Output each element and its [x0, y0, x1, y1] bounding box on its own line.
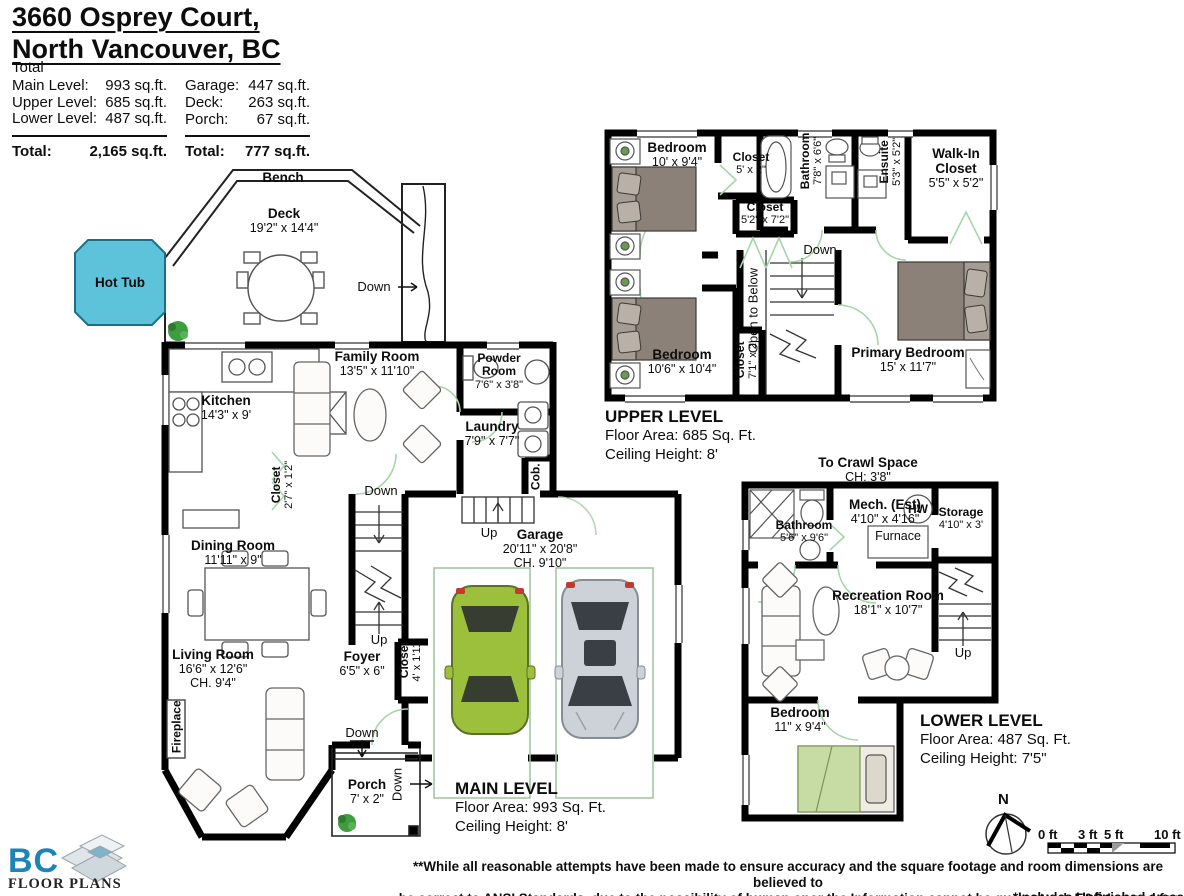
area-table-left: Total Main Level:993 sq.ft. Upper Level:… — [12, 60, 167, 161]
disclaimer-line-3: *Includes Unfinished areas — [392, 890, 1184, 896]
upper-stairs — [766, 250, 834, 395]
room-dims: 7' x 2" — [327, 792, 407, 806]
area-label: Total: — [12, 144, 52, 161]
area-row: Main Level:993 sq.ft. — [12, 78, 167, 95]
area-label: Garage: — [185, 78, 239, 95]
room-dims: 14'3" x 9' — [166, 408, 286, 422]
deck-table-and-chairs — [237, 252, 324, 324]
room-dims: 7'9" x 7'7" — [442, 434, 542, 448]
room-name: Ensuite — [878, 123, 891, 201]
room-dims: 19'2" x 14'4" — [229, 221, 339, 235]
kitchen-label: Kitchen14'3" x 9' — [166, 393, 286, 422]
deck-plant — [168, 321, 188, 341]
room-name: Bedroom — [622, 347, 742, 362]
room-name: Dining Room — [173, 538, 293, 553]
room-dims: 11" x 9'4" — [752, 720, 848, 734]
bc-floor-plans-logo-graphic — [62, 835, 126, 882]
rec-room-furniture — [762, 562, 935, 703]
fireplace-label: Fireplace — [170, 692, 183, 762]
scale-bar — [1048, 843, 1175, 853]
area-value: 777 sq.ft. — [245, 144, 310, 161]
room-name: Deck — [229, 206, 339, 221]
deck-down-label: Down — [352, 279, 396, 294]
room-name: Recreation Room — [818, 588, 958, 603]
room-dims: 5'2" x 7'2" — [733, 214, 797, 226]
room-dims: 4'10" x 3' — [921, 519, 1001, 531]
porch-plant — [338, 814, 356, 832]
compass-north-label: N — [998, 791, 1009, 808]
closet-foyer-label: Closet4' x 1'11" — [398, 628, 424, 692]
area-total-row: Total:2,165 sq.ft. — [12, 135, 167, 161]
area-value: 67 sq.ft. — [257, 112, 310, 129]
room-name: Storage — [921, 506, 1001, 519]
room-dims: 5'6" x 9'6" — [756, 532, 852, 544]
room-dims: 7'8" x 6'6" — [813, 120, 825, 202]
lower-up-label: Up — [948, 645, 978, 660]
room-dims: 15' x 11'7" — [838, 360, 978, 374]
scale-10ft-label: 10 ft — [1154, 827, 1181, 842]
deck-down-arrow — [398, 283, 417, 291]
area-row: Upper Level:685 sq.ft. — [12, 95, 167, 112]
deck-label: Deck19'2" x 14'4" — [229, 206, 339, 235]
closet-hall-label: Closet2'7" x 1'2" — [270, 450, 296, 520]
upper-level-heading: UPPER LEVEL Floor Area: 685 Sq. Ft. Ceil… — [605, 406, 756, 465]
room-dims: 6'5" x 6" — [322, 664, 402, 678]
room-name: Foyer — [322, 649, 402, 664]
porch-label: Porch7' x 2" — [327, 777, 407, 806]
area-value: 487 sq.ft. — [105, 111, 167, 128]
room-dims: 13'5" x 11'10" — [312, 364, 442, 378]
area-row: Porch:67 sq.ft. — [185, 112, 310, 129]
area-total-row: Total:777 sq.ft. — [185, 135, 310, 161]
area-table-header: Total — [12, 60, 167, 77]
area-label: Deck: — [185, 95, 223, 112]
walk-in-closet-label: Walk-InCloset5'5" x 5'2" — [916, 146, 996, 190]
upper-closet2-label: Closet5'2" x 7'2" — [733, 201, 797, 227]
garage-stairs — [462, 497, 534, 523]
room-dims: 10'6" x 10'4" — [622, 362, 742, 376]
area-value: 993 sq.ft. — [105, 78, 167, 95]
lower-level-heading: LOWER LEVEL Floor Area: 487 Sq. Ft. Ceil… — [920, 710, 1071, 769]
compass — [986, 814, 1030, 854]
main-stairs-down-label: Down — [359, 483, 403, 498]
room-ch: CH. 9'4" — [150, 676, 276, 690]
room-name: Porch — [327, 777, 407, 792]
garage-up-label: Up — [477, 525, 501, 540]
furnace-label: Furnace — [870, 529, 926, 543]
room-name: Family Room — [312, 349, 442, 364]
room-name: Closet — [733, 201, 797, 214]
room-name: Closet — [716, 151, 786, 164]
area-row: Deck:263 sq.ft. — [185, 95, 310, 112]
main-stairs — [355, 505, 403, 634]
scale-3ft-label: 3 ft — [1078, 827, 1098, 842]
area-row: Lower Level:487 sq.ft. — [12, 111, 167, 128]
upper-bed-1 — [612, 167, 696, 231]
living-room-furniture — [177, 688, 304, 828]
family-room-label: Family Room13'5" x 11'10" — [312, 349, 442, 378]
room-name: Bedroom — [752, 705, 848, 720]
dining-room-label: Dining Room11'11" x 9" — [173, 538, 293, 567]
logo-floor-plans-text: FLOOR PLANS — [8, 876, 122, 893]
room-dims: 18'1" x 10'7" — [818, 603, 958, 617]
powder-room-label: PowderRoom7'6" x 3'8" — [460, 352, 538, 391]
upper-bathroom-label: Bathroom7'8" x 6'6" — [799, 120, 825, 202]
area-row: Garage:447 sq.ft. — [185, 78, 310, 95]
lower-bed — [798, 746, 894, 812]
porch-down-label: Down — [340, 725, 384, 740]
ensuite-label: Ensuite5'3" x 5'2" — [878, 123, 904, 201]
scale-0ft-label: 0 ft — [1038, 827, 1058, 842]
upper-down-label: Down — [798, 242, 842, 257]
room-ch: CH. 9'10" — [480, 556, 600, 570]
room-name: Closet — [270, 450, 283, 520]
car-green — [445, 586, 535, 734]
room-name: Primary Bedroom — [838, 345, 978, 360]
room-dims: 20'11" x 20'8" — [480, 542, 600, 556]
room-dims: 7'6" x 3'8" — [460, 379, 538, 391]
scale-5ft-label: 5 ft — [1104, 827, 1124, 842]
living-room-label: Living Room16'6" x 12'6"CH. 9'4" — [150, 647, 276, 690]
upper-bedroom2-label: Bedroom10'6" x 10'4" — [622, 347, 742, 376]
lower-bedroom-label: Bedroom11" x 9'4" — [752, 705, 848, 734]
disclaimer-line-1: **While all reasonable attempts have bee… — [413, 859, 1163, 890]
recreation-room-label: Recreation Room18'1" x 10'7" — [818, 588, 958, 617]
room-dims: 2'7" x 1'2" — [284, 450, 296, 520]
page-title: 3660 Osprey Court, North Vancouver, BC — [12, 2, 281, 66]
crawl-space-label: To Crawl SpaceCH: 3'8" — [798, 455, 938, 484]
area-table-right: Garage:447 sq.ft. Deck:263 sq.ft. Porch:… — [185, 78, 310, 161]
main-stairs-up-label: Up — [357, 632, 401, 647]
room-name: Laundry — [442, 419, 542, 434]
room-name: Kitchen — [166, 393, 286, 408]
area-label: Main Level: — [12, 78, 89, 95]
car-silver — [555, 580, 645, 738]
room-name: Living Room — [150, 647, 276, 662]
hot-tub-label: Hot Tub — [80, 275, 160, 290]
area-label: Lower Level: — [12, 111, 97, 128]
room-dims: 7'1" x 2' — [748, 327, 760, 393]
room-dims: 4' x 1'11" — [412, 628, 424, 692]
area-label: Total: — [185, 144, 225, 161]
room-dims: 11'11" x 9" — [173, 553, 293, 567]
room-dims: 5' x 2" — [716, 164, 786, 176]
laundry-label: Laundry7'9" x 7'7" — [442, 419, 542, 448]
main-level-heading: MAIN LEVEL Floor Area: 993 Sq. Ft. Ceili… — [455, 778, 606, 837]
room-dims: 16'6" x 12'6" — [150, 662, 276, 676]
upper-closet1-label: Closet5' x 2" — [716, 151, 786, 177]
room-dims: 5'3" x 5'2" — [892, 123, 904, 201]
room-dims: 5'5" x 5'2" — [916, 176, 996, 190]
area-value: 447 sq.ft. — [248, 78, 310, 95]
address-line-1: 3660 Osprey Court, — [12, 2, 281, 34]
area-value: 263 sq.ft. — [248, 95, 310, 112]
area-label: Porch: — [185, 112, 228, 129]
area-label: Upper Level: — [12, 95, 97, 112]
area-value: 2,165 sq.ft. — [89, 144, 167, 161]
room-name: Bathroom — [799, 120, 812, 202]
primary-bedroom-label: Primary Bedroom15' x 11'7" — [838, 345, 978, 374]
area-value: 685 sq.ft. — [105, 95, 167, 112]
foyer-label: Foyer6'5" x 6" — [322, 649, 402, 678]
floor-plan-page: 3660 Osprey Court, North Vancouver, BC T… — [0, 0, 1184, 896]
storage-label: Storage4'10" x 3' — [921, 506, 1001, 532]
cab-label: Cob. — [529, 459, 542, 495]
bench-label: Bench — [248, 170, 318, 185]
